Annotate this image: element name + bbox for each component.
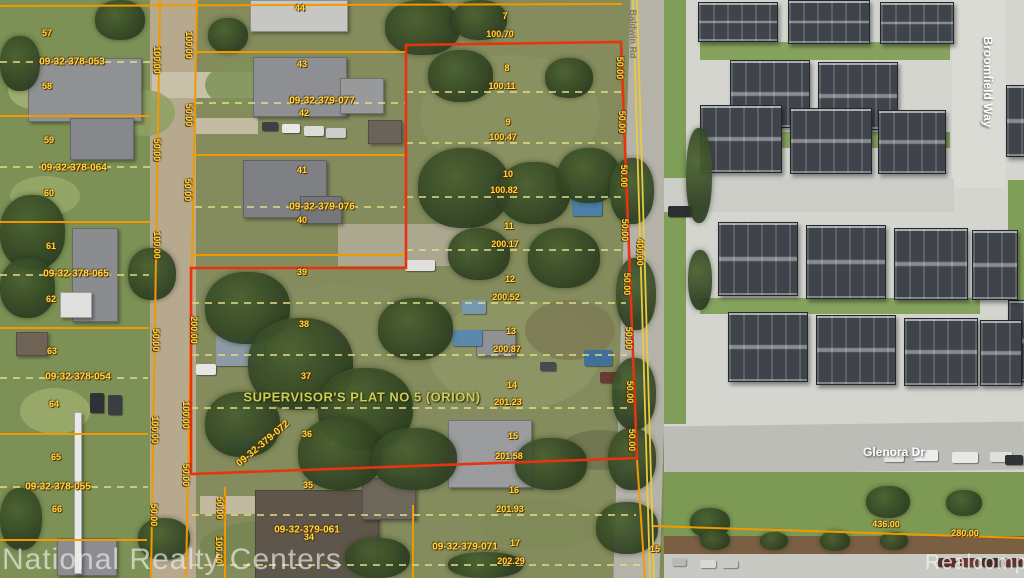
lot-number-label: 62	[46, 294, 56, 304]
dimension-label: 400.00	[635, 238, 645, 266]
parcel-id-label: 09-32-378-055	[25, 482, 91, 493]
vehicle	[722, 560, 738, 568]
dimension-label: 50.00	[624, 327, 634, 350]
dimension-label: 50.00	[617, 111, 627, 134]
townhouse-roof	[718, 222, 798, 296]
lot-number-label: 8	[504, 63, 509, 73]
dimension-label: 100.00	[181, 401, 191, 429]
lot-number-label: 64	[49, 399, 59, 409]
tree-canopy	[688, 250, 712, 310]
tree-canopy	[385, 0, 460, 55]
lot-number-label: 15	[650, 544, 660, 554]
dimension-label: 100.00	[184, 31, 194, 59]
tree-canopy	[610, 158, 654, 224]
building-roof	[60, 292, 92, 318]
tree-canopy	[596, 502, 658, 554]
lot-number-label: 41	[297, 165, 307, 175]
parcel-id-label: 09-32-379-076	[289, 202, 355, 213]
tree-canopy	[686, 128, 712, 223]
tree-canopy	[428, 50, 493, 102]
dimension-label: 200.87	[493, 344, 521, 354]
lot-number-label: 42	[299, 108, 309, 118]
vehicle	[304, 126, 324, 136]
dimension-label: 100.47	[489, 132, 517, 142]
lot-number-label: 40	[297, 215, 307, 225]
townhouse-roof	[698, 2, 778, 42]
lot-number-label: 11	[504, 221, 514, 231]
tree-canopy	[528, 228, 600, 288]
tree-canopy	[0, 488, 42, 550]
lot-number-label: 16	[509, 485, 519, 495]
townhouse-roof	[878, 110, 946, 174]
tree-canopy	[946, 490, 982, 516]
townhouse-roof	[788, 0, 870, 44]
tree-canopy	[700, 530, 730, 550]
townhouse-roof	[980, 320, 1022, 386]
dimension-label: 202.29	[497, 556, 525, 566]
building-roof	[16, 332, 48, 356]
dimension-label: 50.00	[622, 273, 632, 296]
watermark-national-realty-centers: National Realty Centers	[2, 543, 342, 577]
aerial-parcel-map[interactable]: SUPERVISOR'S PLAT NO 5 (ORION) National …	[0, 0, 1024, 578]
terrain-region	[952, 0, 1006, 188]
vehicle	[462, 300, 486, 314]
vehicle	[700, 560, 716, 568]
tree-canopy	[372, 428, 457, 490]
vehicle	[1005, 455, 1023, 465]
vehicle	[326, 128, 346, 138]
townhouse-roof	[880, 2, 954, 44]
pavement	[196, 118, 258, 134]
townhouse-roof	[894, 228, 968, 300]
dimension-label: 100.00	[152, 231, 162, 259]
vehicle	[90, 393, 104, 413]
dimension-label: 200.17	[491, 239, 519, 249]
vehicle	[108, 395, 122, 415]
building-roof	[368, 120, 402, 144]
dimension-label: 50.00	[215, 497, 225, 520]
tree-canopy	[545, 58, 593, 98]
tree-canopy	[0, 36, 40, 91]
dimension-label: 201.58	[495, 451, 523, 461]
lot-number-label: 14	[507, 380, 517, 390]
dimension-label: 50.00	[619, 165, 629, 188]
dimension-label: 50.00	[627, 429, 637, 452]
tree-canopy	[448, 228, 510, 280]
dimension-label: 201.93	[496, 504, 524, 514]
dimension-label: 50.00	[181, 464, 191, 487]
terrain-region	[664, 421, 1024, 474]
lot-number-label: 63	[47, 346, 57, 356]
vehicle	[262, 122, 278, 131]
parcel-id-label: 09-32-378-065	[43, 269, 109, 280]
townhouse-roof	[972, 230, 1018, 300]
tree-canopy	[515, 438, 587, 490]
dimension-label: 50.00	[615, 57, 625, 80]
lot-number-label: 37	[301, 371, 311, 381]
grass-strip	[700, 42, 950, 60]
lot-number-label: 61	[46, 241, 56, 251]
parcel-id-label: 09-32-378-064	[41, 163, 107, 174]
tree-canopy	[208, 18, 248, 53]
lot-number-label: 43	[297, 59, 307, 69]
dimension-label: 100.00	[152, 46, 162, 74]
dimension-label: 50.00	[620, 219, 630, 242]
lot-number-label: 36	[302, 429, 312, 439]
dimension-label: 50.00	[183, 179, 193, 202]
vehicle	[672, 558, 686, 566]
lot-number-label: 10	[503, 169, 513, 179]
vehicle	[196, 364, 216, 375]
lot-number-label: 57	[42, 28, 52, 38]
lot-number-label: 65	[51, 452, 61, 462]
plat-name-label: SUPERVISOR'S PLAT NO 5 (ORION)	[243, 390, 480, 405]
dimension-label: 201.23	[494, 397, 522, 407]
lot-number-label: 58	[42, 81, 52, 91]
lot-number-label: 35	[303, 480, 313, 490]
dimension-label: 50.00	[184, 104, 194, 127]
lot-number-label: 60	[44, 188, 54, 198]
vehicle	[952, 452, 978, 463]
tree-canopy	[345, 538, 410, 578]
townhouse-roof	[790, 108, 872, 174]
vehicle	[540, 362, 556, 371]
parcel-id-label: 09-32-378-054	[45, 372, 111, 383]
dimension-label: 280.00	[951, 528, 979, 538]
tree-canopy	[95, 0, 145, 40]
lot-number-label: 44	[295, 3, 305, 13]
tree-canopy	[866, 486, 910, 518]
lot-number-label: 59	[44, 135, 54, 145]
tree-canopy	[820, 531, 850, 551]
dimension-label: 100.11	[488, 81, 515, 91]
lot-number-label: 17	[510, 538, 520, 548]
lot-number-label: 39	[297, 267, 307, 277]
building-roof	[70, 118, 134, 160]
dimension-label: 436.00	[872, 519, 900, 529]
dimension-label: 100.70	[486, 29, 514, 39]
watermark-realcomp: Realcomp	[925, 551, 1024, 575]
lot-number-label: 7	[502, 11, 507, 21]
parcel-id-label: 09-32-379-061	[274, 525, 340, 536]
tree-canopy	[378, 298, 453, 360]
dimension-label: 200.52	[492, 292, 520, 302]
townhouse-roof	[700, 105, 782, 173]
vehicle	[584, 350, 612, 366]
lot-number-label: 66	[52, 504, 62, 514]
dimension-label: 200.00	[189, 316, 199, 344]
tree-canopy	[760, 532, 788, 550]
lot-number-label: 9	[505, 117, 510, 127]
townhouse-roof	[904, 318, 978, 386]
parcel-id-label: 09-32-379-071	[432, 542, 498, 553]
townhouse-roof	[1006, 85, 1024, 157]
lot-number-label: 38	[299, 319, 309, 329]
parcel-id-label: 09-32-378-053	[39, 57, 105, 68]
tree-canopy	[0, 258, 55, 318]
lot-number-label: 13	[506, 326, 516, 336]
parcel-id-label: 09-32-379-077	[289, 96, 355, 107]
townhouse-roof	[816, 315, 896, 385]
dimension-label: 100.82	[490, 185, 518, 195]
dimension-label: 100.00	[150, 416, 160, 444]
dimension-label: 50.00	[625, 381, 635, 404]
dimension-label: 50.00	[152, 139, 162, 162]
road-name-label: Baldwin Rd	[628, 10, 638, 59]
vehicle	[282, 124, 300, 133]
vehicle	[405, 260, 435, 271]
lot-number-label: 15	[508, 431, 518, 441]
vehicle	[452, 330, 482, 346]
road-name-label: Broomfield Way	[981, 37, 995, 128]
townhouse-roof	[728, 312, 808, 382]
townhouse-roof	[806, 225, 886, 299]
dimension-label: 50.00	[149, 504, 159, 527]
tree-canopy	[880, 532, 908, 550]
lot-number-label: 12	[505, 274, 515, 284]
road-name-label: Glenora Dr	[863, 445, 925, 459]
dimension-label: 50.00	[151, 329, 161, 352]
